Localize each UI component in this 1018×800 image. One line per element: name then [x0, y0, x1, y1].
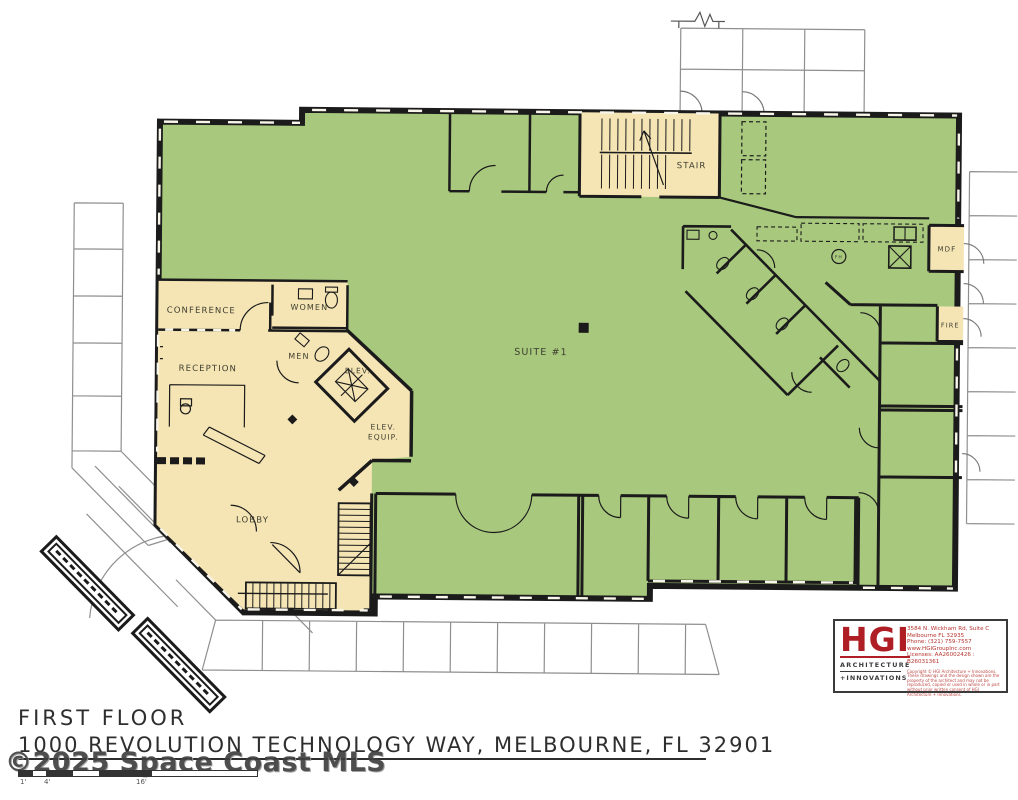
label-stair: STAIR [677, 161, 707, 171]
scale-seg [19, 771, 32, 776]
label-men: MEN [288, 352, 309, 361]
hgi-acronym: HGI [840, 625, 910, 658]
scale-seg [99, 771, 151, 776]
scale-seg [151, 771, 257, 776]
hgi-tagline-architecture: ARCHITECTURE [840, 661, 901, 669]
canopy-bar-lower [133, 618, 225, 711]
scale-seg [72, 771, 99, 776]
scale-seg [46, 771, 72, 776]
label-conference: CONFERENCE [167, 306, 236, 317]
suite-column [579, 323, 588, 332]
exterior-door-arcs [962, 244, 984, 472]
hgi-phone: Phone: (321) 759-7557 [907, 639, 1003, 646]
hgi-address-line2: Melbourne FL 32935 [907, 633, 1003, 640]
label-fh: FH [835, 254, 843, 260]
hgi-fineprint: Copyright © HGI Architecture + Innovatio… [907, 670, 1003, 698]
hgi-website: www.HGIGroupInc.com [907, 646, 1003, 653]
parking-top-right [680, 28, 865, 115]
scale-bar: 1' 4' 16' [18, 770, 258, 787]
match-line [671, 12, 725, 28]
label-fire: FIRE [941, 321, 960, 329]
floor-plan-sheet: SUITE #1 STAIR CONFERENCE RECEPTION WOME… [0, 0, 1018, 800]
label-women: WOMEN [290, 303, 328, 312]
hgi-logo: HGI ARCHITECTURE +INNOVATIONS [835, 621, 903, 691]
canopy-bar-upper [41, 537, 133, 630]
hgi-tagline-innovations: +INNOVATIONS [840, 671, 901, 682]
label-elev-equip-1: ELEV. [370, 422, 396, 431]
sheet-title: FIRST FLOOR [18, 706, 187, 730]
parking-top-door-arcs [680, 91, 764, 113]
scale-tick-1ft: 1' [20, 778, 26, 786]
label-elev-equip-2: EQUIP. [368, 432, 399, 441]
label-reception: RECEPTION [179, 364, 237, 375]
label-suite: SUITE #1 [514, 347, 568, 358]
parking-right-column [967, 172, 1018, 524]
hgi-contact-block: 3584 N. Wickham Rd, Suite C Melbourne FL… [903, 621, 1006, 691]
hgi-address-line1: 3584 N. Wickham Rd, Suite C [907, 626, 1003, 633]
scale-tick-4ft: 4' [44, 778, 50, 786]
label-elev: ELEV. [345, 366, 371, 375]
scale-bar-segments [18, 770, 258, 777]
architect-logo-block: HGI ARCHITECTURE +INNOVATIONS 3584 N. Wi… [833, 619, 1008, 693]
hgi-license: Licenses: AA26002426 : B26031361 [907, 652, 1003, 665]
label-mdf: MDF [937, 245, 956, 253]
label-lobby: LOBBY [236, 515, 269, 525]
scale-tick-16ft: 16' [136, 778, 147, 786]
scale-bar-ticks: 1' 4' 16' [18, 777, 258, 787]
scale-seg [32, 771, 46, 776]
